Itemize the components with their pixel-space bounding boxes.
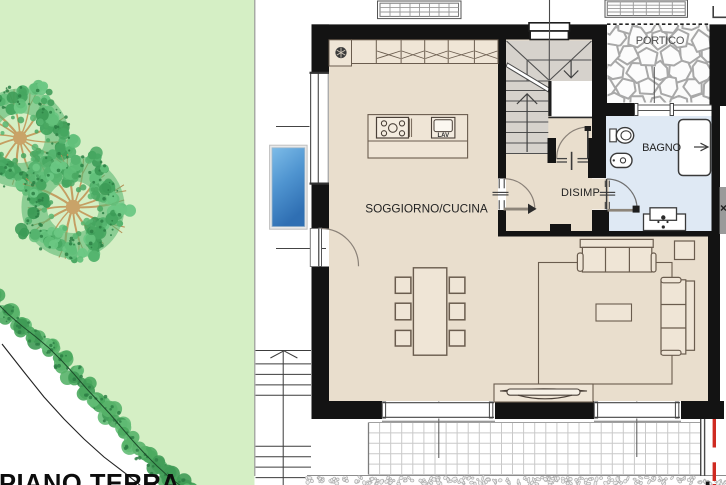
- svg-text:DISIMP: DISIMP: [561, 187, 600, 199]
- svg-text:PORTICO: PORTICO: [636, 35, 685, 47]
- svg-text:BAGNO: BAGNO: [642, 142, 681, 154]
- svg-text:PIANO TERRA: PIANO TERRA: [0, 470, 180, 485]
- svg-text:LAV: LAV: [438, 133, 450, 139]
- svg-text:SOGGIORNO/CUCINA: SOGGIORNO/CUCINA: [365, 202, 488, 216]
